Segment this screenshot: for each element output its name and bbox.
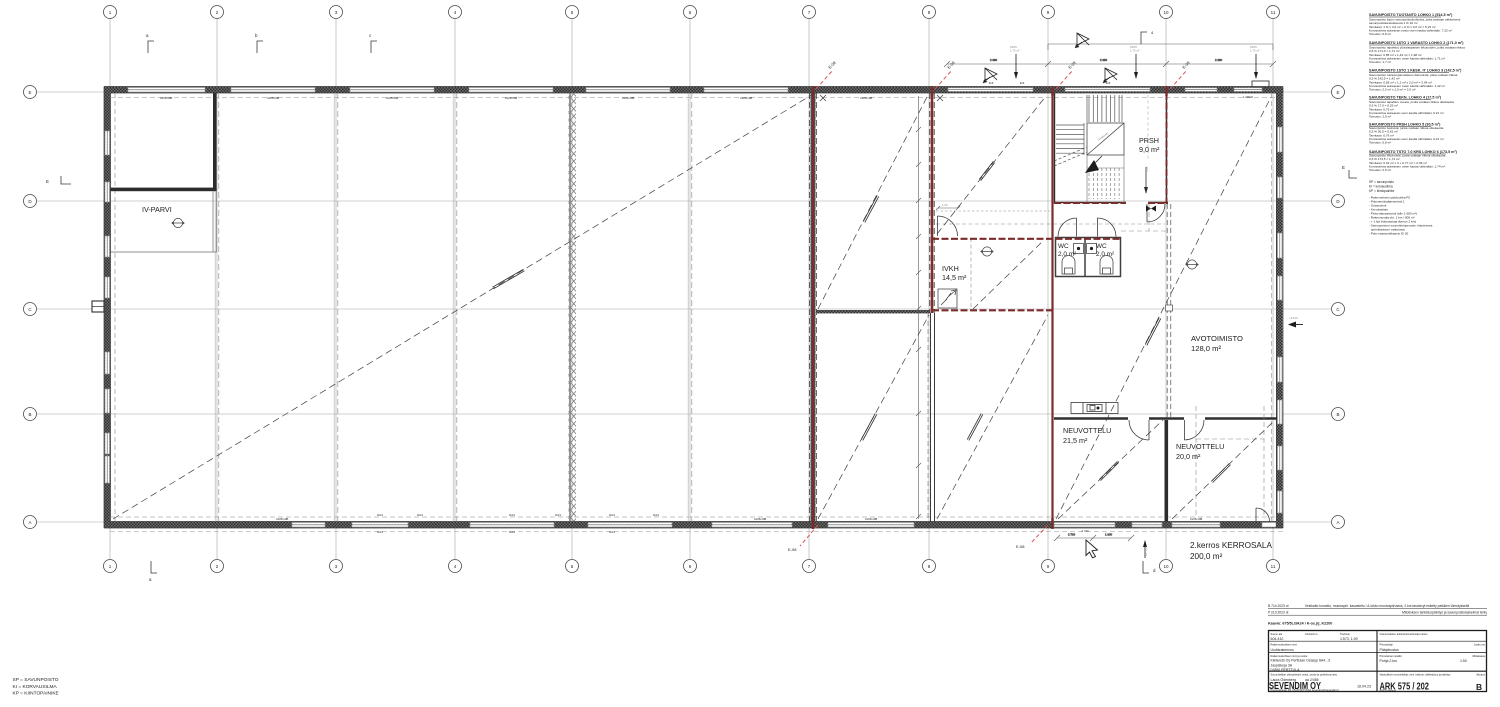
- svg-text:Piirustuksen sisältö: Piirustuksen sisältö: [1380, 654, 1403, 658]
- svg-text:a: a: [146, 33, 149, 38]
- svg-text:11: 11: [1271, 564, 1276, 569]
- svg-text:Piirustuslaji: Piirustuslaji: [1380, 643, 1394, 647]
- svg-text:UL08-10B: UL08-10B: [386, 96, 399, 100]
- svg-text:200,0 m²: 200,0 m²: [1190, 552, 1223, 561]
- svg-text:9x21: 9x21: [555, 513, 562, 517]
- svg-text:Viranomaisten arkistointimerki: Viranomaisten arkistointimerkintöjä vart…: [1380, 632, 1429, 636]
- svg-text:WC: WC: [1058, 243, 1069, 250]
- svg-text:11: 11: [1271, 10, 1276, 15]
- svg-text:KP = kiintopainike: KP = kiintopainike: [1369, 189, 1395, 193]
- svg-text:A: A: [1336, 520, 1339, 525]
- svg-text:E: E: [1342, 165, 1345, 170]
- svg-text:SAVUNPOISTO 1STO 1 VARASTO LOH: SAVUNPOISTO 1STO 1 VARASTO LOHKO 2 (171,…: [1369, 41, 1464, 45]
- svg-text:1 09: 1 09: [942, 203, 948, 207]
- svg-text:Pohja 2.krs: Pohja 2.krs: [1380, 659, 1398, 663]
- svg-text:2 380: 2 380: [1215, 58, 1222, 62]
- svg-text:Toteutus: 6,8 m²: Toteutus: 6,8 m²: [1369, 32, 1391, 36]
- svg-text:A: A: [28, 520, 31, 525]
- svg-text:9,0 m²: 9,0 m²: [1139, 145, 1160, 154]
- svg-text:B 714.2023 ot: B 714.2023 ot: [1268, 604, 1289, 608]
- svg-text:E-08: E-08: [1016, 544, 1025, 549]
- svg-text:E-08: E-08: [1181, 60, 1191, 70]
- svg-text:UL08-10B: UL08-10B: [860, 96, 873, 100]
- svg-text:Juoks.nro: Juoks.nro: [1474, 643, 1486, 647]
- svg-text:Rakennuskohteen nimi: Rakennuskohteen nimi: [1271, 643, 1298, 647]
- svg-text:2 380: 2 380: [1100, 58, 1107, 62]
- svg-text:E-08: E-08: [946, 60, 956, 70]
- svg-text:UL08-10B: UL08-10B: [267, 96, 280, 100]
- svg-text:20,0 m²: 20,0 m²: [1176, 452, 1201, 461]
- svg-text:Suunnittelijan yhteystiedot: y: Suunnittelijan yhteystiedot: yritys, oso…: [1271, 673, 1338, 677]
- svg-text:- Palo-osastointikaavio EI 30: - Palo-osastointikaavio EI 30: [1369, 232, 1408, 236]
- svg-text:IVKH: IVKH: [942, 264, 959, 273]
- svg-text:Jaspiskuja 3A: Jaspiskuja 3A: [1271, 663, 1293, 667]
- svg-text:604-410: 604-410: [1271, 637, 1284, 641]
- svg-text:14,5 m²: 14,5 m²: [942, 273, 967, 282]
- svg-text:9x21: 9x21: [417, 513, 424, 517]
- svg-text:UL08-10B: UL08-10B: [160, 96, 173, 100]
- svg-text:KI = KORVAUSILMA: KI = KORVAUSILMA: [13, 684, 58, 690]
- svg-text:1:573, 1:39: 1:573, 1:39: [1340, 637, 1358, 641]
- svg-text:KI = korvausilma: KI = korvausilma: [1369, 185, 1393, 189]
- svg-text:2.kerros KERROSALA: 2.kerros KERROSALA: [1190, 541, 1272, 550]
- svg-text:UL08-10B: UL08-10B: [622, 96, 635, 100]
- svg-text:NEUVOTTELU: NEUVOTTELU: [1063, 426, 1111, 435]
- svg-text:Uudisrakennus: Uudisrakennus: [1271, 648, 1295, 652]
- svg-text:2 380: 2 380: [990, 58, 997, 62]
- svg-text:AVOTOIMISTO: AVOTOIMISTO: [1191, 334, 1243, 343]
- svg-text:ARK/uusittava: ARK/uusittava: [1380, 688, 1397, 692]
- svg-text:KP 1,25: KP 1,25: [1144, 546, 1148, 556]
- svg-text:18.04.23: 18.04.23: [1357, 685, 1371, 689]
- svg-text:IV-PARVI: IV-PARVI: [142, 205, 172, 214]
- svg-text:10: 10: [1163, 10, 1169, 15]
- svg-text:SAVUNPOISTO 1STO 1 KESK. IT LO: SAVUNPOISTO 1STO 1 KESK. IT LOHKO 3 (142…: [1369, 69, 1462, 73]
- svg-text:Vastuullinen suunnittelija: ni: Vastuullinen suunnittelija: nimi, tutkin…: [1380, 673, 1452, 677]
- svg-text:Muutos: Muutos: [1476, 673, 1485, 677]
- svg-text:1 300: 1 300: [1105, 533, 1112, 537]
- svg-text:Mittakaava: Mittakaava: [1472, 654, 1485, 658]
- svg-text:Toteutus: 2,0 m²: Toteutus: 2,0 m²: [1369, 115, 1391, 119]
- svg-text:9x6: 9x6: [989, 81, 994, 85]
- svg-text:2,0 m²: 2,0 m²: [1058, 251, 1076, 258]
- svg-text:UL08-10B: UL08-10B: [740, 96, 753, 100]
- svg-text:10: 10: [1163, 564, 1169, 569]
- svg-text:E-08: E-08: [788, 547, 797, 552]
- svg-text:B: B: [1476, 682, 1482, 692]
- svg-text:Mitoituksen tarkistuspäivitys: Mitoituksen tarkistuspäivitys ja savunpo…: [1402, 611, 1487, 615]
- svg-text:E-08: E-08: [827, 60, 837, 70]
- svg-text:UL08-10B: UL08-10B: [754, 517, 767, 521]
- svg-text:NEUVOTTELU: NEUVOTTELU: [1176, 442, 1224, 451]
- svg-text:Kaavio: 675/5L/3A24 / K-os.jrj: Kaavio: 675/5L/3A24 / K-os.jrj, K2200: [1268, 622, 1332, 626]
- svg-text:1:50: 1:50: [1460, 659, 1467, 663]
- svg-text:+33,06: +33,06: [1289, 316, 1298, 320]
- svg-text:Toteutus: 1,7 m²: Toteutus: 1,7 m²: [1369, 60, 1391, 64]
- svg-text:UL08-10B: UL08-10B: [276, 517, 289, 521]
- svg-text:Suunn.ala: Suunn.ala: [1271, 632, 1283, 636]
- svg-text:PRSH: PRSH: [1139, 136, 1159, 145]
- svg-text:Arkisto/nro: Arkisto/nro: [1305, 632, 1318, 636]
- svg-text:1,70 m²: 1,70 m²: [1130, 48, 1140, 52]
- svg-text:4: 4: [1151, 30, 1154, 35]
- svg-text:1,70 m²: 1,70 m²: [1010, 48, 1020, 52]
- svg-text:9x6: 9x6: [1106, 81, 1111, 85]
- svg-text:Tiedosto: Tiedosto: [1340, 632, 1350, 636]
- svg-text:B: B: [1336, 412, 1339, 417]
- svg-text:01860 PERTTULA: 01860 PERTTULA: [1271, 668, 1301, 672]
- svg-text:1:25: 1:25: [1145, 166, 1149, 172]
- svg-text:21,5 m²: 21,5 m²: [1063, 436, 1088, 445]
- svg-text:Toteutus: 2,0 m² x 1,0 m² = 2,: Toteutus: 2,0 m² x 1,0 m² = 2,0 m²: [1369, 88, 1416, 92]
- svg-text:UL08-10B: UL08-10B: [865, 517, 878, 521]
- svg-text:E: E: [28, 90, 31, 95]
- svg-text:KP = KIINTOPAINIKE: KP = KIINTOPAINIKE: [13, 691, 59, 697]
- svg-text:Kiinteistö Oy Perttulan Osasyp: Kiinteistö Oy Perttulan Osasyp 6A4...3: [1271, 659, 1331, 663]
- svg-text:UL08-10B: UL08-10B: [505, 96, 518, 100]
- svg-text:9x21: 9x21: [609, 513, 616, 517]
- svg-text:E: E: [1336, 90, 1339, 95]
- svg-text:Vesikatto korvattu, muutospiir: Vesikatto korvattu, muutospiir. kasvatet…: [1305, 604, 1469, 608]
- svg-text:d: d: [1153, 568, 1156, 573]
- svg-text:Puusepänkatu 2B, 05100 RÖYKKÄ: Puusepänkatu 2B, 05100 RÖYKKÄ sevendim@s…: [1271, 688, 1340, 692]
- svg-text:UL08-10B: UL08-10B: [1190, 517, 1203, 521]
- svg-text:6x21: 6x21: [609, 530, 616, 534]
- svg-text:6x21: 6x21: [377, 530, 384, 534]
- svg-text:SP = SAVUNPOISTO: SP = SAVUNPOISTO: [13, 677, 59, 683]
- svg-text:c: c: [369, 33, 372, 38]
- svg-text:2,0 m²: 2,0 m²: [1096, 251, 1114, 258]
- svg-text:Rakennuskohteen nimi ja osoite: Rakennuskohteen nimi ja osoite: [1271, 654, 1308, 658]
- svg-text:1 200x6: 1 200x6: [1243, 95, 1253, 99]
- svg-text:E-08: E-08: [1067, 60, 1077, 70]
- svg-text:Toteutus: 0,8 m²: Toteutus: 0,8 m²: [1369, 141, 1391, 145]
- svg-text:E: E: [46, 179, 49, 184]
- svg-text:Toteutus: 2,5 m²: Toteutus: 2,5 m²: [1369, 168, 1391, 172]
- svg-text:9x6: 9x6: [1020, 81, 1025, 85]
- svg-text:a: a: [149, 577, 152, 582]
- svg-text:P 210.2023 ot: P 210.2023 ot: [1268, 611, 1289, 615]
- svg-text:2 700: 2 700: [1082, 529, 1089, 533]
- svg-text:9x21: 9x21: [509, 513, 516, 517]
- svg-text:6x21: 6x21: [509, 530, 516, 534]
- svg-text:1,70 m²: 1,70 m²: [1250, 48, 1260, 52]
- svg-text:B: B: [28, 412, 31, 417]
- svg-text:9x21: 9x21: [653, 513, 660, 517]
- svg-text:b: b: [255, 33, 258, 38]
- svg-text:SAVUNPOISTO TUOTANTO LOHKO 1 (: SAVUNPOISTO TUOTANTO LOHKO 1 (514,5 m²): [1369, 13, 1453, 17]
- svg-text:9x21: 9x21: [377, 513, 384, 517]
- svg-text:SAVUNPOISTO TEKN. LOHKO 4 (17,: SAVUNPOISTO TEKN. LOHKO 4 (17,5 m²): [1369, 96, 1442, 100]
- svg-text:SP = savunpoisto: SP = savunpoisto: [1369, 180, 1394, 184]
- svg-text:128,0 m²: 128,0 m²: [1191, 344, 1221, 353]
- svg-text:WC: WC: [1096, 243, 1107, 250]
- svg-text:2 700: 2 700: [1068, 533, 1075, 537]
- svg-text:Pääpiirustus: Pääpiirustus: [1380, 648, 1400, 652]
